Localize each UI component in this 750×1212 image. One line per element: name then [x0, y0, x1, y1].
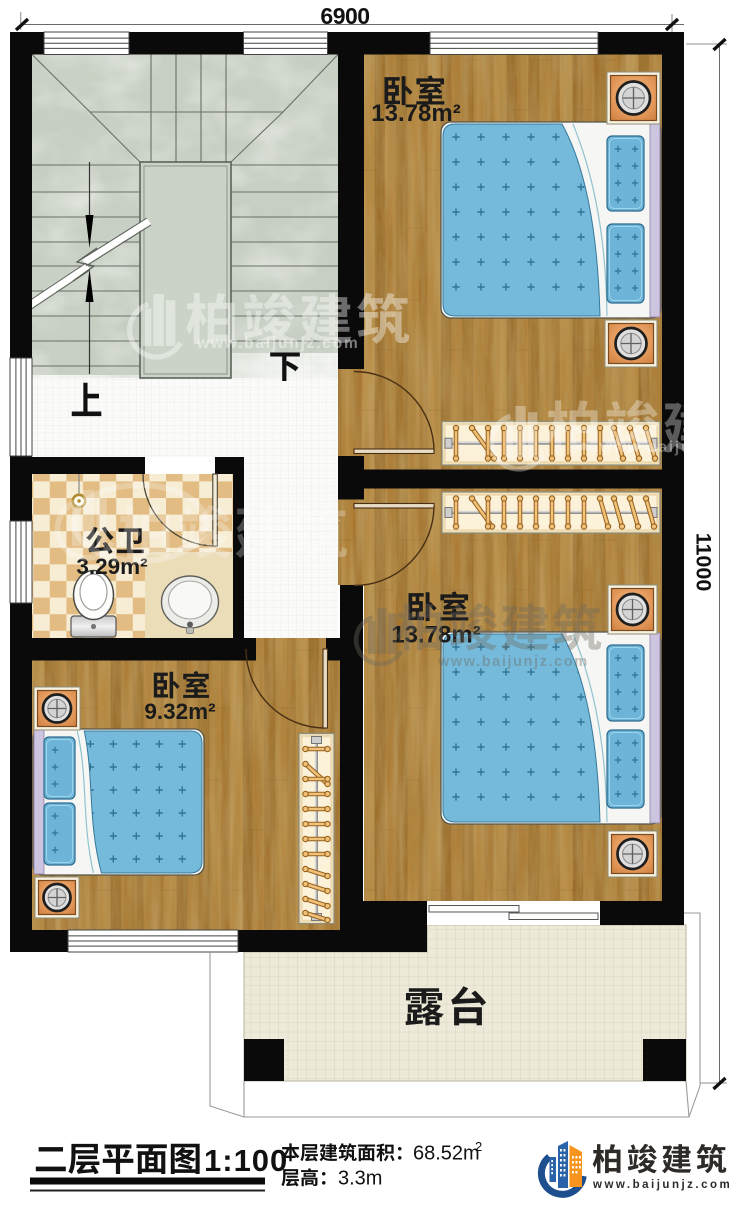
svg-text:www.baijunjz.com: www.baijunjz.com	[437, 654, 589, 670]
svg-text:1:100: 1:100	[204, 1143, 288, 1178]
svg-text:11000: 11000	[692, 533, 716, 592]
svg-text:6900: 6900	[320, 3, 369, 29]
svg-text:www.baijunjz.com: www.baijunjz.com	[599, 439, 750, 456]
svg-text:2: 2	[475, 1139, 482, 1154]
svg-text:www.baijunjz.com: www.baijunjz.com	[196, 335, 360, 352]
svg-text:www.baijunjz.com: www.baijunjz.com	[592, 1179, 732, 1191]
svg-text:13.78m²: 13.78m²	[371, 100, 460, 127]
svg-text:3.3m: 3.3m	[338, 1168, 382, 1190]
svg-text:68.52m: 68.52m	[413, 1143, 480, 1165]
svg-text:9.32m²: 9.32m²	[144, 699, 216, 724]
